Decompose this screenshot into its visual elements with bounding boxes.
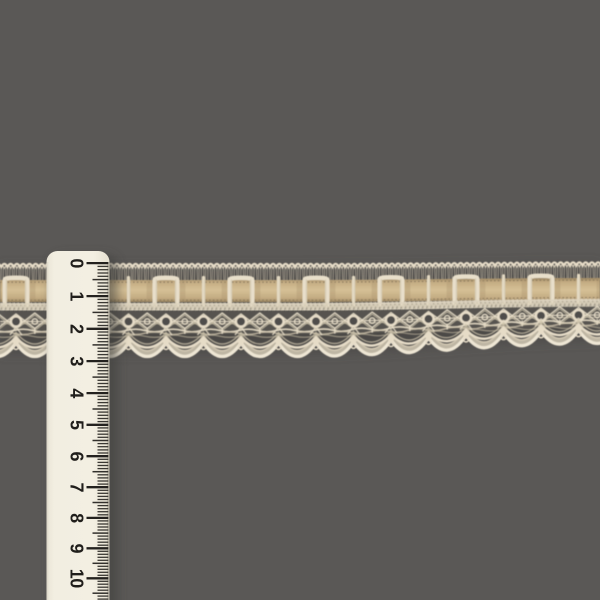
svg-text:1: 1 [67,291,87,301]
svg-text:4: 4 [67,388,87,398]
svg-text:2: 2 [67,324,87,334]
svg-text:8: 8 [67,513,87,523]
svg-text:9: 9 [67,544,87,554]
svg-text:10: 10 [67,569,87,589]
svg-text:6: 6 [67,451,87,461]
svg-text:3: 3 [67,356,87,366]
svg-text:7: 7 [67,482,87,492]
svg-text:5: 5 [67,420,87,430]
svg-text:0: 0 [67,258,87,268]
